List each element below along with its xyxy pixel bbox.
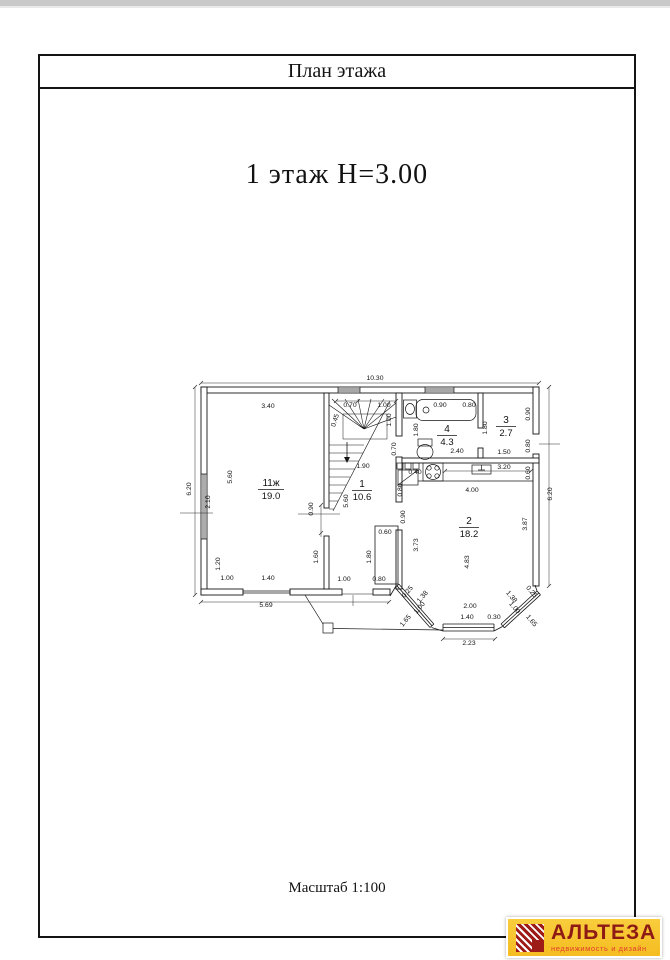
dimension-label: 2.00 [463, 603, 476, 610]
agency-name: АЛЬТЕЗА [551, 922, 656, 943]
dimension-label: 1.90 [356, 463, 369, 470]
bathtub-drain [423, 407, 429, 413]
dimension-label: 1.65 [524, 614, 538, 629]
dimension-label: 0.25 [524, 585, 538, 600]
dimension-label: 1.80 [366, 550, 373, 563]
dimension-label: 1.00 [337, 576, 350, 583]
dimension-label: 10.30 [366, 375, 383, 382]
room-number-label: 1 [359, 479, 365, 490]
dimension-label: 1.00 [507, 601, 521, 616]
room-area-label: 18.2 [460, 529, 479, 540]
alteza-logo-icon [516, 924, 544, 952]
dimension-label: 6.20 [186, 482, 193, 495]
porch-canopy-edge [305, 595, 323, 624]
dimension-label: 1.80 [482, 421, 489, 434]
floor-plan-drawing: 10.303.400.701.000.451.000.900.801.800.7… [180, 371, 560, 661]
dimension-label: 3.73 [413, 538, 420, 551]
dimension-label: 3.87 [522, 517, 529, 530]
dimension-label: 0.70 [391, 442, 398, 455]
dimension-label: 1.80 [413, 423, 420, 436]
title-band: План этажа [40, 56, 634, 89]
room-number-label: 11ж [262, 478, 279, 489]
dimension-label: 0.80 [462, 402, 475, 409]
scan-artifact-strip-light [0, 6, 670, 8]
dimension-label: 0.80 [525, 439, 532, 452]
floor-heading: 1 этаж Н=3.00 [40, 159, 634, 191]
toilet-bowl [417, 445, 433, 460]
agency-logo: АЛЬТЕЗА недвижимость и дизайн [506, 917, 662, 958]
dimension-label: 1.50 [497, 449, 510, 456]
dimension-label: 0.90 [308, 502, 315, 515]
dimension-label: 0.60 [378, 529, 391, 536]
dimension-label: 1.40 [261, 575, 274, 582]
dimension-label: 1.20 [215, 557, 222, 570]
dimension-label: 5.60 [343, 494, 350, 507]
page-title: План этажа [288, 60, 386, 83]
dimension-label: 1.60 [313, 550, 320, 563]
page-frame: План этажа 1 этаж Н=3.00 [38, 54, 636, 938]
porch-post [323, 623, 333, 633]
dimension-label: 5.60 [227, 470, 234, 483]
scale-note: Масштаб 1:100 [40, 880, 634, 897]
dimension-label: 0.45 [330, 413, 341, 428]
dimension-labels: 10.303.400.701.000.451.000.900.801.800.7… [186, 375, 554, 647]
room-area-label: 4.3 [440, 437, 453, 448]
dimension-label: 5.69 [259, 602, 272, 609]
dimension-label: 4.00 [465, 487, 478, 494]
dimension-label: 1.40 [460, 614, 473, 621]
dimension-label: 0.90 [433, 402, 446, 409]
dimension-label: 1.00 [386, 413, 393, 426]
dimension-label: 0.40 [408, 469, 421, 476]
dimension-label: 0.70 [343, 402, 356, 409]
room-number-label: 2 [466, 516, 472, 527]
dimension-label: 1.00 [377, 402, 390, 409]
dimension-label: 0.90 [400, 510, 407, 523]
dimension-label: 3.40 [261, 403, 274, 410]
agency-tagline: недвижимость и дизайн [551, 945, 656, 953]
dimension-label: 0.80 [397, 483, 404, 496]
room-area-label: 2.7 [499, 428, 512, 439]
dimension-label: 6.20 [547, 487, 554, 500]
room-number-label: 4 [444, 424, 450, 435]
dimension-label: 3.20 [497, 464, 510, 471]
porch-edge [333, 629, 443, 631]
dimension-label: 0.25 [401, 585, 415, 600]
dimension-label: 0.90 [525, 407, 532, 420]
stair-direction-arrow [344, 457, 350, 463]
dimension-label: 0.80 [372, 576, 385, 583]
dimension-label: 2.23 [462, 640, 475, 647]
toilet-tank [418, 439, 432, 446]
stove [423, 463, 443, 481]
room-area-label: 10.6 [353, 492, 372, 503]
dimension-label: 2.40 [450, 448, 463, 455]
dimension-label: 2.10 [205, 495, 212, 508]
document-page: План этажа 1 этаж Н=3.00 [0, 0, 670, 960]
dimension-label: 1.00 [220, 575, 233, 582]
room-number-label: 3 [503, 415, 509, 426]
dimension-label: 1.65 [399, 614, 413, 629]
room-area-label: 19.0 [262, 491, 281, 502]
dimension-label: 0.60 [525, 466, 532, 479]
dimension-label: 0.30 [487, 614, 500, 621]
dimension-label: 4.83 [464, 555, 471, 568]
